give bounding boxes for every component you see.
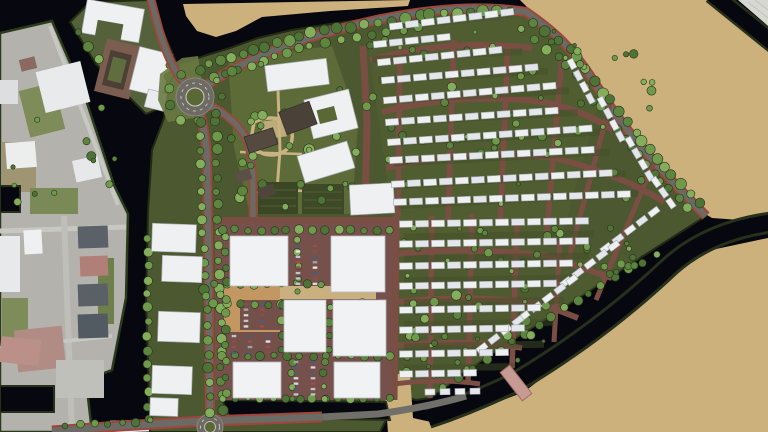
masterplan-aerial-view xyxy=(0,0,768,432)
masterplan-svg xyxy=(0,0,768,432)
